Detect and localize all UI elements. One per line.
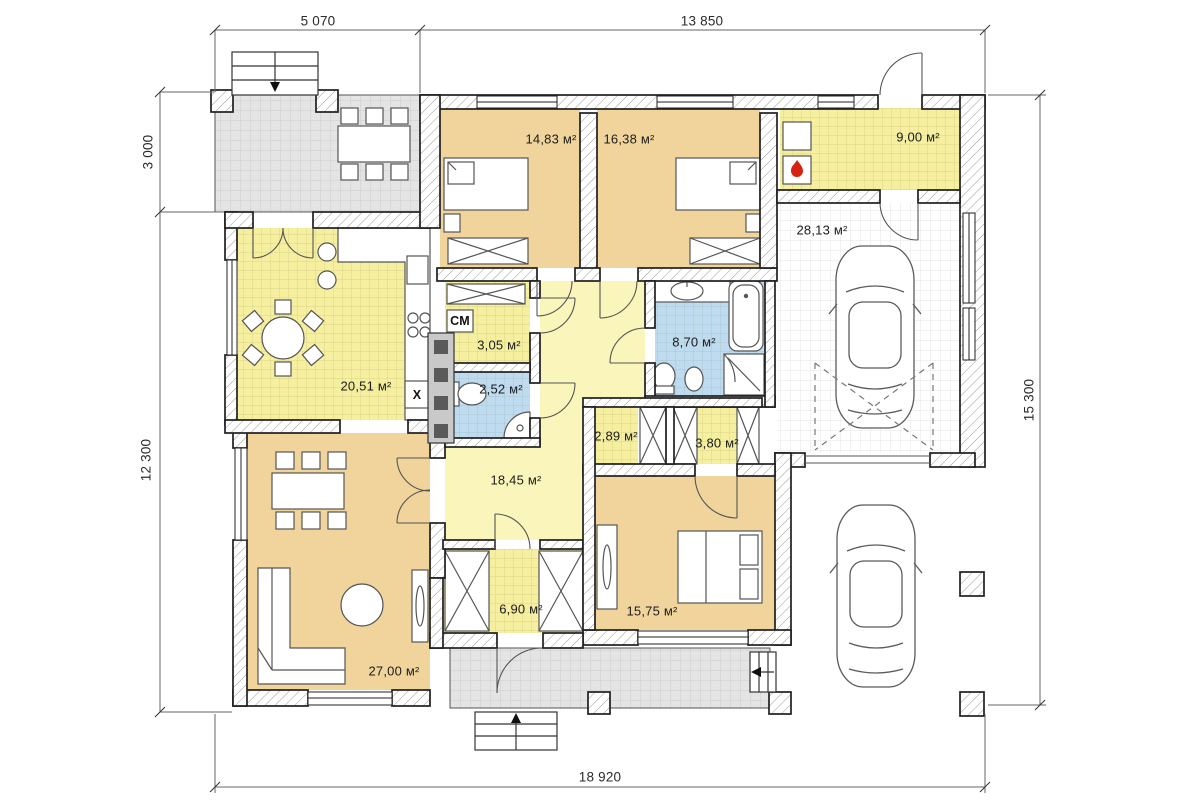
dim-right-side: 15 300	[1022, 379, 1037, 422]
room-label-bedroom1: 14,83 м²	[525, 132, 576, 147]
room-label-bedroom3: 15,75 м²	[626, 604, 677, 619]
floor-plan-drawing	[0, 0, 1200, 806]
stairs-side	[750, 652, 776, 692]
room-label-laundry: 3,05 м²	[477, 338, 521, 353]
room-label-bathroom: 8,70 м²	[672, 335, 716, 350]
window	[638, 631, 748, 644]
bar-stool	[318, 271, 336, 289]
dim-top-left: 5 070	[301, 14, 336, 29]
room-label-kitchen: 20,51 м²	[340, 379, 391, 394]
laundry-wardrobe	[447, 284, 525, 304]
floor-plan: 5 070 13 850 3 000 12 300 15 300 18 920 …	[0, 0, 1200, 806]
bar-stool	[318, 243, 336, 261]
window	[235, 448, 247, 540]
stairs-porch	[475, 712, 557, 750]
kitchen-sink	[407, 256, 428, 284]
dim-top-main: 13 850	[681, 14, 724, 29]
vent-shaft	[428, 333, 454, 443]
room-label-wc: 2,52 м²	[479, 382, 523, 397]
column	[960, 572, 984, 596]
tv-stand-living	[412, 570, 428, 642]
wardrobe-bedroom2	[690, 238, 760, 264]
window	[227, 260, 237, 355]
room-label-garage: 28,13 м²	[796, 223, 847, 238]
bed-double	[678, 531, 762, 603]
room-label-boiler: 9,00 м²	[896, 130, 940, 145]
window	[963, 213, 975, 303]
door-entrance-top	[880, 53, 922, 95]
marker-washing-machine: СМ	[450, 314, 470, 328]
column	[316, 90, 338, 112]
column	[960, 692, 984, 716]
room-label-entry-wardrobe: 6,90 м²	[499, 602, 543, 617]
column	[769, 692, 791, 714]
bath-toilet	[653, 363, 675, 394]
car-parking	[830, 505, 922, 687]
column	[211, 90, 233, 112]
dim-bottom-total: 18 920	[579, 770, 622, 785]
room-label-closet2: 3,80 м²	[695, 436, 739, 451]
tv-stand-bedroom3	[597, 525, 617, 609]
window	[308, 692, 392, 705]
column	[588, 692, 610, 714]
marker-fridge: X	[413, 388, 422, 402]
window	[963, 308, 975, 360]
dim-left-lower: 12 300	[139, 439, 154, 482]
coffee-table	[341, 584, 383, 626]
dim-left-upper: 3 000	[141, 135, 156, 170]
wardrobe-bedroom1	[448, 238, 528, 264]
shower	[724, 354, 764, 395]
bathtub	[729, 281, 763, 351]
room-label-bedroom2: 16,38 м²	[603, 132, 654, 147]
car-garage	[829, 246, 921, 428]
stairs-terrace	[232, 52, 318, 95]
room-label-closet1: 2,89 м²	[594, 429, 638, 444]
window	[477, 96, 557, 108]
room-label-living: 27,00 м²	[368, 664, 419, 679]
bath-vanity	[650, 281, 730, 302]
living-dining-set	[272, 452, 346, 529]
terrace-dining-set	[338, 108, 410, 180]
room-label-hall: 18,45 м²	[490, 473, 541, 488]
window	[818, 96, 854, 108]
garage-gate	[805, 456, 930, 463]
bath-bidet	[685, 367, 703, 391]
window	[657, 96, 733, 108]
